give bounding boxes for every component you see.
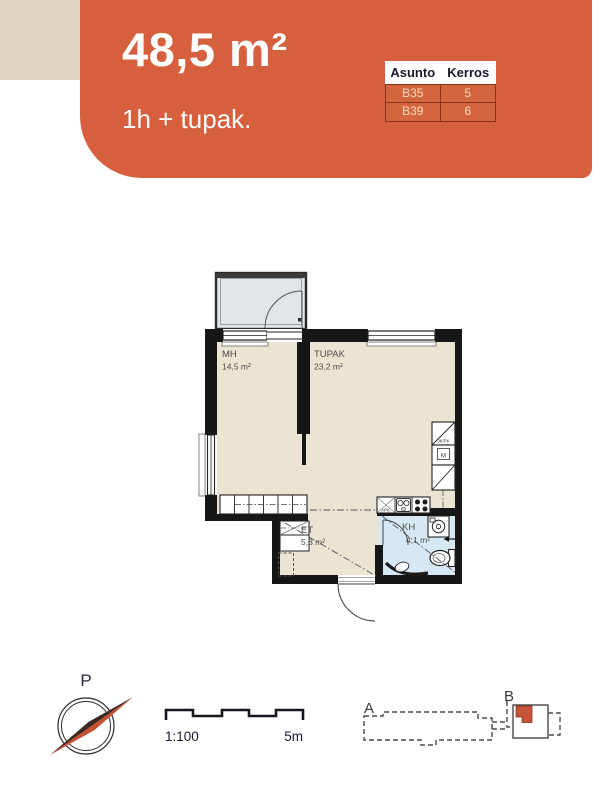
building-a-outline xyxy=(364,712,492,745)
table-header-asunto: Asunto xyxy=(385,61,441,84)
apartment-area-title: 48,5 m² xyxy=(122,22,287,77)
toilet xyxy=(430,550,455,567)
room-area-mh: 14,5 m² xyxy=(222,362,251,372)
sink xyxy=(397,499,411,512)
table-cell-floor-number: 6 xyxy=(441,103,497,122)
entry-door xyxy=(338,575,375,621)
corner-accent-block xyxy=(0,0,80,80)
balcony xyxy=(216,273,306,329)
divider-wall xyxy=(297,342,310,434)
compass: P xyxy=(50,671,133,755)
site-plan: A B xyxy=(364,688,560,745)
room-name-mh: MH xyxy=(222,349,237,360)
building-b-label: B xyxy=(504,688,514,705)
building-connector xyxy=(492,722,507,729)
room-name-tupak: TUPAK xyxy=(314,349,346,360)
bath-left-wall xyxy=(375,545,383,577)
header-banner: 48,5 m² 1h + tupak. Asunto Kerros B35 5 … xyxy=(80,0,592,178)
tupak-window xyxy=(367,329,436,346)
fridge-label: JK/PK xyxy=(438,439,450,444)
table-row: B39 6 xyxy=(385,103,496,122)
wardrobe-row xyxy=(220,495,307,514)
table-cell-floor-number: 5 xyxy=(441,84,497,103)
kitchen-bath-wall xyxy=(427,508,462,516)
room-area-tupak: 23,2 m² xyxy=(314,362,343,372)
brochure-page: 48,5 m² 1h + tupak. Asunto Kerros B35 5 … xyxy=(0,0,604,793)
north-label: P xyxy=(80,671,91,690)
dishwasher-label: APK xyxy=(381,508,390,513)
mh-window xyxy=(222,329,268,346)
door-handle-dot xyxy=(298,318,302,322)
apartment-type-subtitle: 1h + tupak. xyxy=(122,104,251,135)
balcony-door-opening xyxy=(267,329,302,342)
table-header-kerros: Kerros xyxy=(441,61,497,84)
table-cell-apartment-number: B39 xyxy=(385,103,441,122)
scale-ratio-label: 1:100 xyxy=(165,729,199,744)
kitchen-counter: APK xyxy=(377,497,430,513)
room-area-kh: 4,1 m² xyxy=(406,535,430,545)
room-name-et: ET xyxy=(301,525,313,536)
room-name-kh: KH xyxy=(402,522,415,533)
divider-door-leaf xyxy=(302,434,306,465)
table-cell-apartment-number: B35 xyxy=(385,84,441,103)
building-a-label: A xyxy=(364,700,374,717)
left-window xyxy=(199,434,217,496)
table-row: B35 5 xyxy=(385,84,496,103)
scale-length-label: 5m xyxy=(284,729,303,744)
floorplan-drawing: JK/PK M APK xyxy=(195,262,470,632)
washing-machine xyxy=(428,516,449,537)
microwave-label: M xyxy=(441,454,446,460)
footer-graphics: P 1:100 5m A B xyxy=(0,655,604,793)
room-area-et: 5,8 m² xyxy=(301,537,325,547)
apartment-floor-table: Asunto Kerros B35 5 B39 6 xyxy=(385,61,496,122)
scale-bar: 1:100 5m xyxy=(165,710,303,744)
table-header-row: Asunto Kerros xyxy=(385,61,496,84)
